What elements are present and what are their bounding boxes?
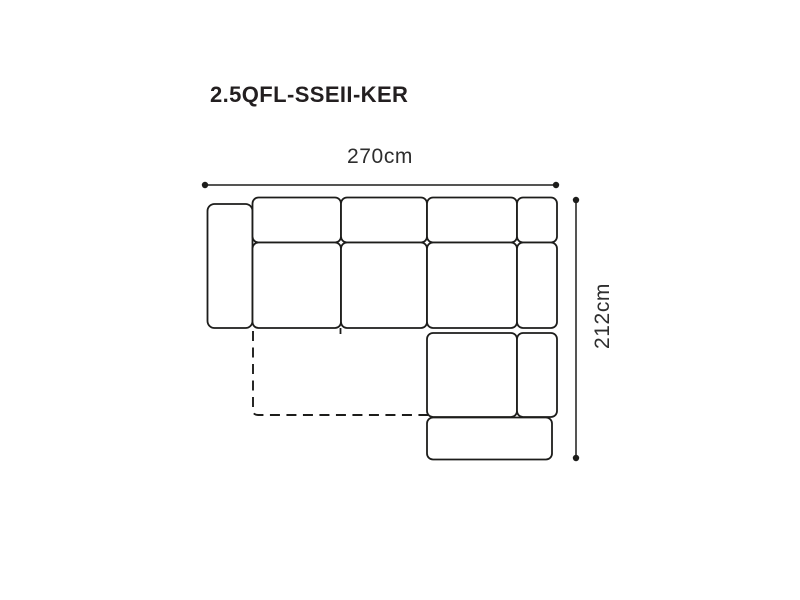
width-dimension-dot-left — [202, 182, 208, 188]
chaise-seat — [427, 333, 517, 417]
sofa-dimension-diagram: 2.5QFL-SSEII-KER 270cm — [0, 0, 800, 600]
seat-cushion-2 — [341, 243, 427, 329]
width-dimension: 270cm — [202, 145, 559, 188]
width-dimension-dot-right — [553, 182, 559, 188]
corner-back-cushion — [517, 198, 557, 243]
width-dimension-label: 270cm — [347, 145, 413, 168]
height-dimension: 212cm — [573, 197, 614, 461]
height-dimension-dot-top — [573, 197, 579, 203]
left-armrest — [208, 204, 253, 328]
height-dimension-dot-bottom — [573, 455, 579, 461]
ottoman — [427, 418, 552, 460]
diagram-canvas: 2.5QFL-SSEII-KER 270cm — [0, 0, 800, 600]
back-cushion-2 — [341, 198, 427, 243]
sofa-outline — [208, 198, 558, 460]
height-dimension-label: 212cm — [591, 283, 614, 349]
right-armrest-upper — [517, 243, 557, 329]
seat-cushion-1 — [253, 243, 342, 329]
right-armrest-lower — [517, 333, 557, 417]
pull-out-bed-dashed-outline — [253, 331, 428, 415]
product-code-title: 2.5QFL-SSEII-KER — [210, 82, 408, 107]
back-cushion-1 — [253, 198, 342, 243]
back-cushion-3 — [427, 198, 517, 243]
corner-seat — [427, 243, 517, 329]
